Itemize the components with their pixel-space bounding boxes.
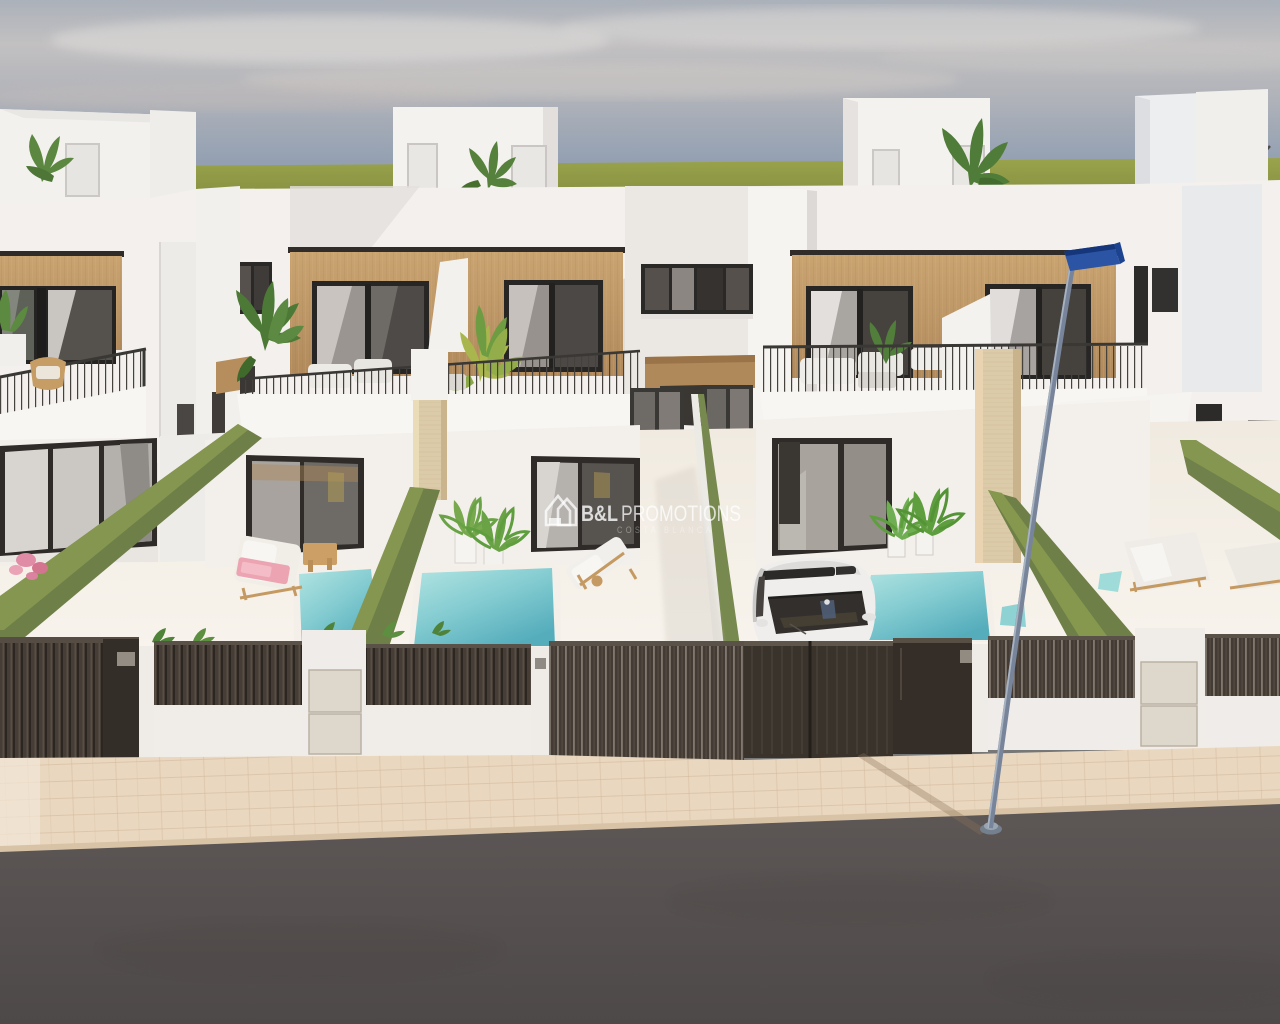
svg-text:COSTA BLANCA: COSTA BLANCA (617, 525, 714, 535)
svg-text:PROMOTIONS: PROMOTIONS (621, 501, 741, 526)
svg-text:B&L: B&L (581, 501, 618, 526)
